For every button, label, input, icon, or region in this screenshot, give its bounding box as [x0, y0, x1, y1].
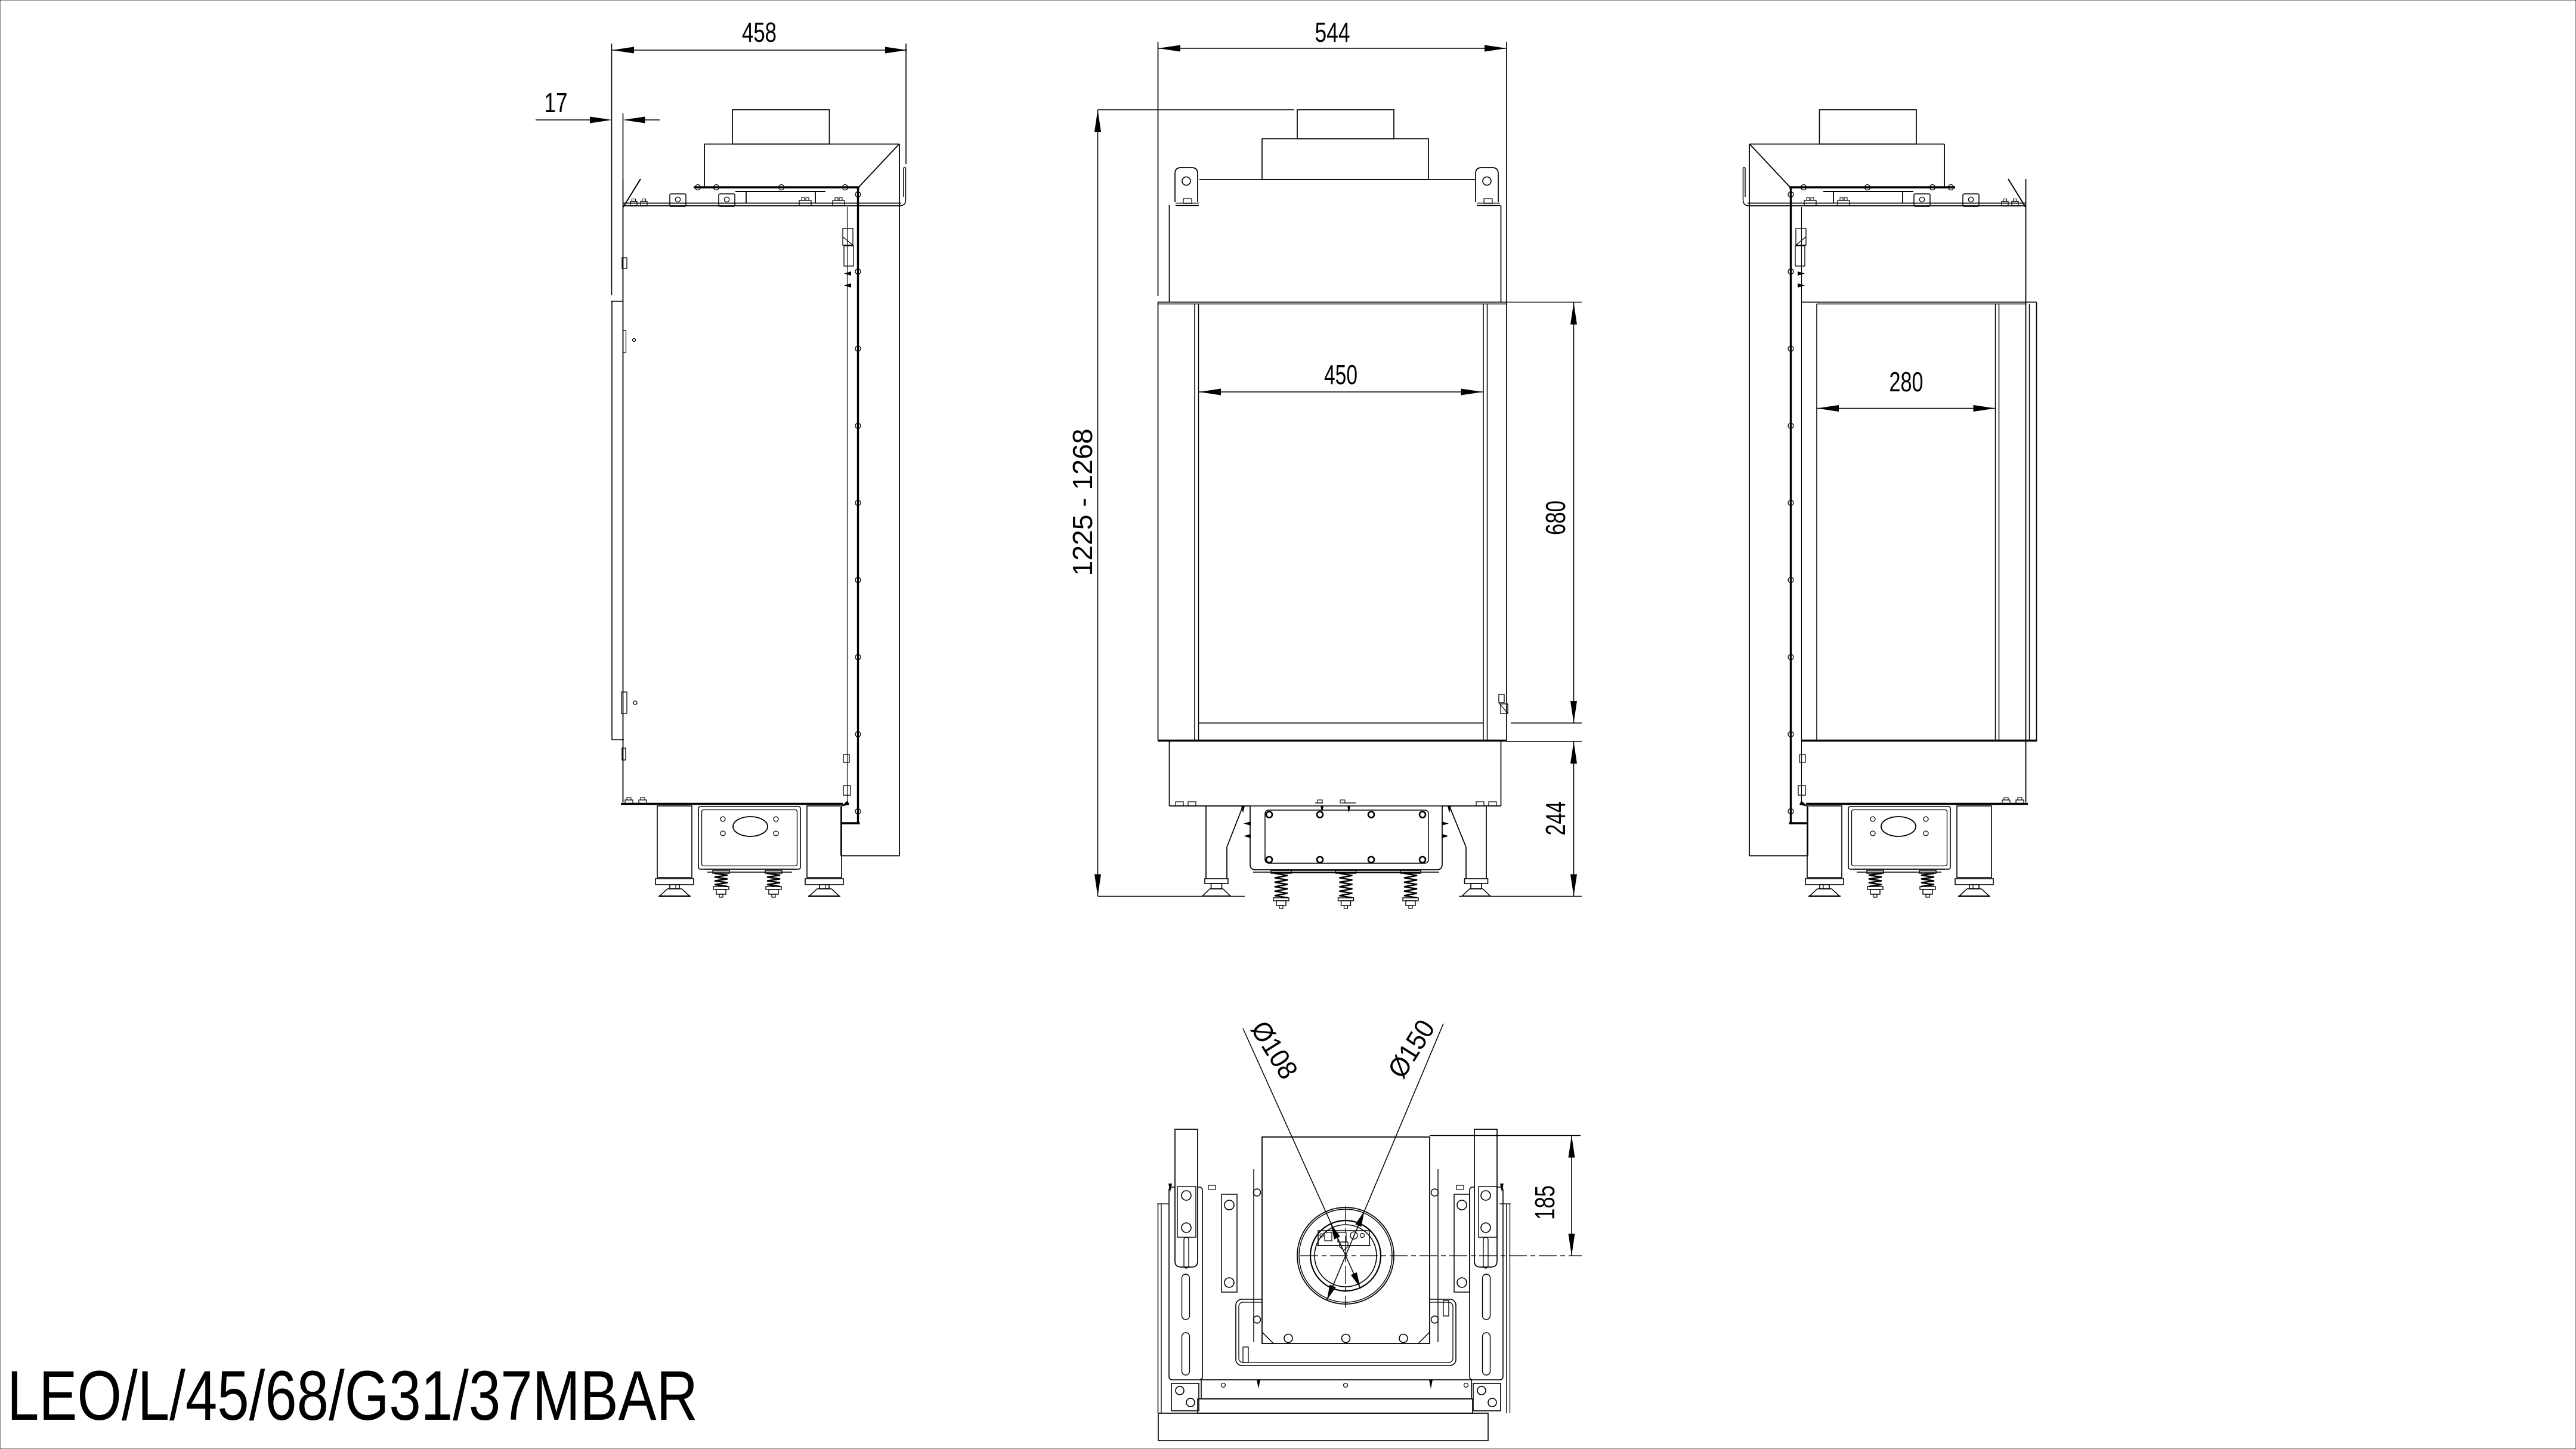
- svg-text:17: 17: [545, 87, 568, 118]
- svg-text:450: 450: [1324, 359, 1357, 390]
- svg-text:280: 280: [1890, 366, 1924, 397]
- svg-text:185: 185: [1529, 1185, 1560, 1220]
- svg-text:Ø150: Ø150: [1381, 1014, 1440, 1083]
- svg-text:244: 244: [1540, 802, 1571, 836]
- svg-text:544: 544: [1315, 17, 1350, 48]
- svg-text:680: 680: [1540, 500, 1571, 535]
- svg-text:1225 - 1268: 1225 - 1268: [1067, 429, 1098, 576]
- svg-text:458: 458: [742, 17, 777, 48]
- svg-text:LEO/L/45/68/G31/37MBAR: LEO/L/45/68/G31/37MBAR: [7, 1357, 698, 1435]
- svg-text:Ø108: Ø108: [1245, 1015, 1304, 1085]
